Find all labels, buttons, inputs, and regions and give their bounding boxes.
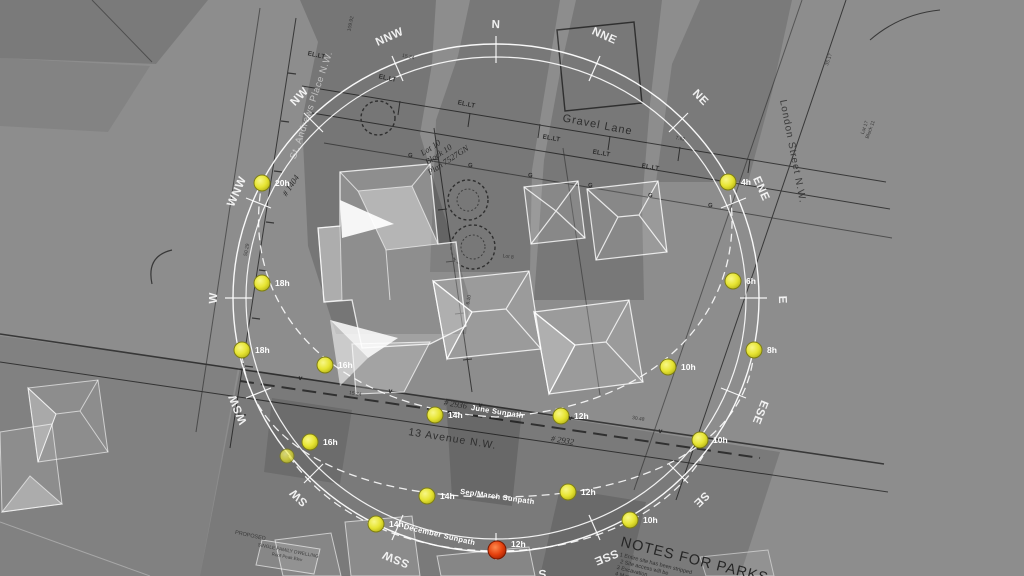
hour-label: 10h <box>713 435 728 445</box>
sun-dot-june-18h[interactable] <box>254 275 270 291</box>
hour-label: 14h <box>389 519 404 529</box>
hour-label: 4h <box>741 177 751 187</box>
sun-dot-june-12h[interactable] <box>553 408 569 424</box>
hour-label: 16h <box>323 437 338 447</box>
sun-dot-dec-sunset[interactable] <box>280 449 294 463</box>
hour-label: 12h <box>581 487 596 497</box>
sun-dot-june-6h[interactable] <box>725 273 741 289</box>
sun-dot-sep-16h[interactable] <box>302 434 318 450</box>
hip-roof-house <box>534 300 643 394</box>
hip-roof-house <box>524 181 585 244</box>
hour-label: 18h <box>255 345 270 355</box>
compass-w: W <box>208 292 220 304</box>
sun-path-shadow-study-view: 4h 6h 10h 12h 14h 16h 18h 20h 8h 10h 12h… <box>0 0 1024 576</box>
sun-dot-sep-14h[interactable] <box>419 488 435 504</box>
compass-s: S <box>538 567 547 576</box>
sun-dot-june-20h[interactable] <box>254 175 270 191</box>
sun-dot-sep-8h[interactable] <box>746 342 762 358</box>
hour-label: 10h <box>681 362 696 372</box>
compass-n: N <box>491 19 500 31</box>
sun-dot-june-16h[interactable] <box>317 357 333 373</box>
site-plan-canvas: 4h 6h 10h 12h 14h 16h 18h 20h 8h 10h 12h… <box>0 0 1024 576</box>
sun-dot-june-14h[interactable] <box>427 407 443 423</box>
compass-e: E <box>776 296 788 305</box>
sun-dot-june-4h[interactable] <box>720 174 736 190</box>
sun-dot-sep-18h[interactable] <box>234 342 250 358</box>
hour-label: 6h <box>746 276 756 286</box>
sun-dot-dec-10h[interactable] <box>622 512 638 528</box>
hour-label: 12h <box>574 411 589 421</box>
sun-dot-sep-12h[interactable] <box>560 484 576 500</box>
hour-label: 18h <box>275 278 290 288</box>
hour-label: 14h <box>440 491 455 501</box>
current-sun-position-dot[interactable] <box>488 541 506 559</box>
hour-label: 12h <box>511 539 526 549</box>
sun-dot-dec-14h[interactable] <box>368 516 384 532</box>
sun-dot-sep-10h[interactable] <box>692 432 708 448</box>
hour-label: 10h <box>643 515 658 525</box>
hip-roof-house <box>587 181 667 260</box>
hour-label: 8h <box>767 345 777 355</box>
sun-dot-june-10h[interactable] <box>660 359 676 375</box>
hour-label: 14h <box>448 410 463 420</box>
hour-label: 16h <box>338 360 353 370</box>
hip-roof-house <box>433 271 541 359</box>
